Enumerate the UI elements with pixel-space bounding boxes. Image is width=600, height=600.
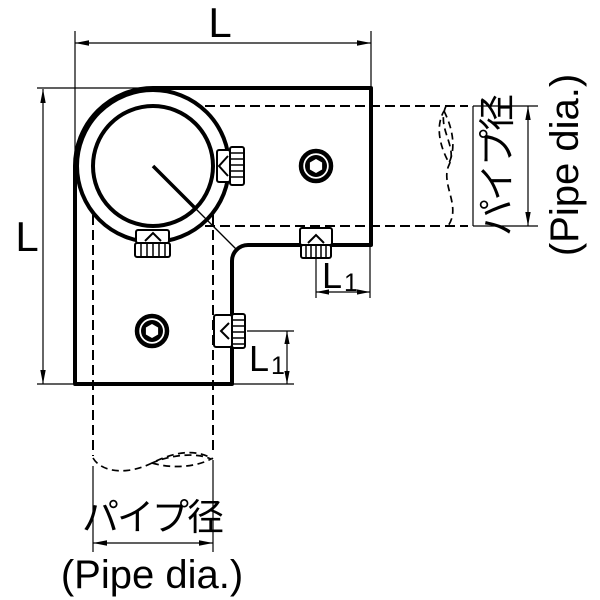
arrowhead	[357, 289, 370, 294]
arrowhead	[93, 540, 107, 545]
set-screw-front-bore-right-icon	[217, 147, 244, 185]
arrowhead	[525, 212, 530, 226]
label-right-L1-sub: 1	[344, 269, 358, 297]
arrowhead	[357, 40, 371, 45]
label-right-pipe-dia-en: (Pipe dia.)	[543, 74, 587, 256]
arrowhead	[40, 89, 45, 103]
pipe-break-right-icon	[439, 106, 453, 226]
label-top-length-L: L	[208, 0, 231, 46]
set-screw-horizontal-arm-icon	[300, 228, 332, 258]
hex-socket-screw-vertical-arm-icon	[137, 316, 167, 346]
label-bottom-L1-sub: 1	[271, 352, 285, 380]
screw-knurled-head	[232, 314, 245, 348]
hex-socket-screw-horizontal-arm-icon	[301, 151, 331, 181]
label-bottom-pipe-dia-en: (Pipe dia.)	[61, 553, 243, 597]
arrowhead	[284, 371, 289, 384]
screw-neck	[214, 315, 232, 347]
screw-neck	[300, 228, 332, 245]
three-way-corner-pipe-fitting-diagram: L L L 1 L 1 パイプ径 (Pipe dia.) パイプ径 (Pipe …	[0, 0, 600, 600]
pipe-break-bottom-icon	[93, 453, 213, 471]
arrowhead	[75, 40, 89, 45]
break-lens	[152, 455, 211, 466]
pipe-fitting-drawing-canvas: L L L 1 L 1 パイプ径 (Pipe dia.) パイプ径 (Pipe …	[0, 0, 600, 600]
label-right-pipe-dia-jp: パイプ径	[477, 95, 518, 236]
arrowhead	[525, 106, 530, 120]
set-screw-front-bore-bottom-icon	[135, 230, 170, 257]
label-bottom-L1-main: L	[249, 338, 269, 379]
label-right-L1-main: L	[322, 255, 342, 296]
set-screw-vertical-arm-icon	[214, 314, 245, 348]
label-left-length-L: L	[15, 213, 38, 260]
arrowhead	[284, 331, 289, 344]
arrowhead	[40, 370, 45, 384]
label-bottom-pipe-dia-jp: パイプ径	[82, 497, 223, 538]
screw-neck	[136, 230, 169, 243]
arrowhead	[199, 540, 213, 545]
break-s-curve	[443, 106, 452, 226]
